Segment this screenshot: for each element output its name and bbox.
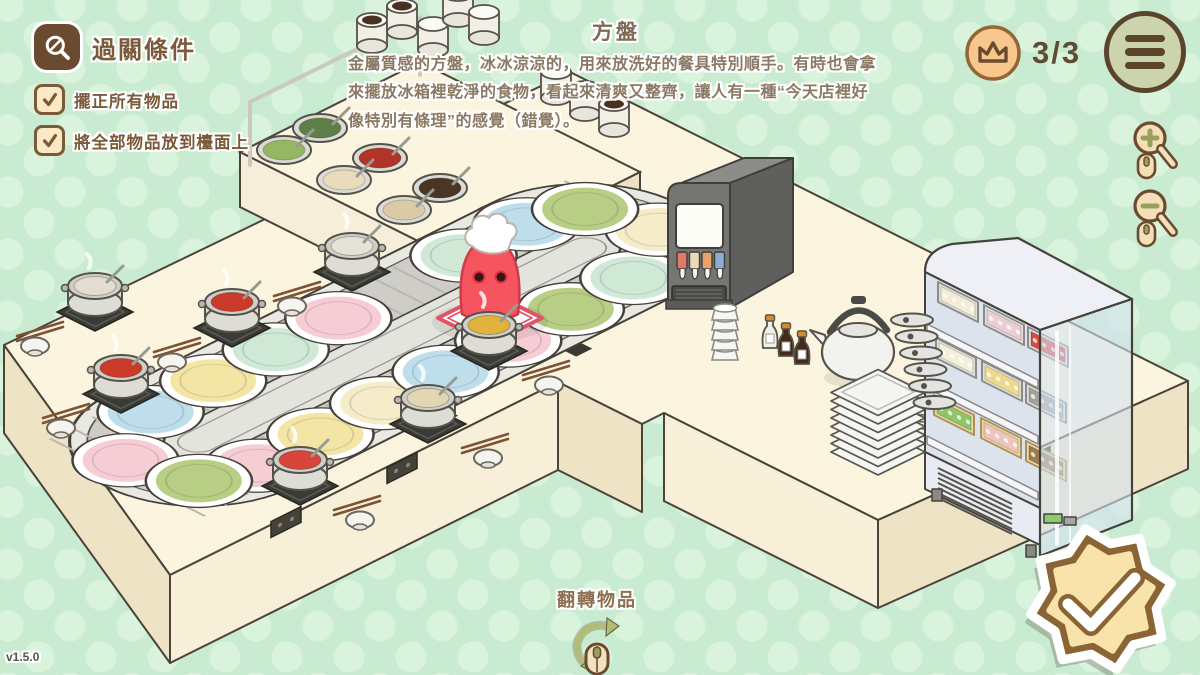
version-label: v1.5.0 <box>6 650 39 664</box>
objective-label: 擺正所有物品 <box>74 88 179 112</box>
hamburger-icon <box>1125 35 1165 43</box>
score-display: 3/3 <box>962 22 1081 84</box>
tooltip-description: 金屬質感的方盤，冰冰涼涼的，用來放洗好的餐具特別順手。有時也會拿來擺放冰箱裡乾淨… <box>348 51 884 136</box>
menu-button[interactable] <box>1104 11 1186 93</box>
checkbox-checked-icon <box>34 84 65 115</box>
pot-lid[interactable] <box>914 396 956 409</box>
objectives-magnifier-icon <box>34 24 80 70</box>
cup-stack[interactable] <box>712 304 738 360</box>
score-value: 3/3 <box>1032 35 1081 71</box>
objective-label: 將全部物品放到檯面上 <box>74 129 249 153</box>
flip-hint: 翻轉物品 <box>497 586 697 675</box>
game-screen: 過關條件 擺正所有物品 將全部物品放到檯面上 方盤 金屬質感的方盤，冰冰涼涼的，… <box>0 0 1200 675</box>
confirm-button[interactable] <box>1016 514 1186 675</box>
tooltip-title: 方盤 <box>348 16 884 46</box>
zoom-in-button[interactable] <box>1126 118 1184 189</box>
checkbox-checked-icon <box>34 125 65 156</box>
mouse-icon <box>1138 154 1155 178</box>
pot-lid[interactable] <box>896 330 938 343</box>
pot-lid[interactable] <box>909 380 951 393</box>
objective-item: 將全部物品放到檯面上 <box>34 125 364 156</box>
item-tooltip: 方盤 金屬質感的方盤，冰冰涼涼的，用來放洗好的餐具特別順手。有時也會拿來擺放冰箱… <box>348 16 884 136</box>
objectives-list: 擺正所有物品 將全部物品放到檯面上 <box>34 84 364 156</box>
mouse-icon <box>586 644 608 674</box>
objectives-panel: 過關條件 擺正所有物品 將全部物品放到檯面上 <box>34 24 364 156</box>
zoom-out-button[interactable] <box>1126 186 1184 257</box>
pot-lid[interactable] <box>891 314 933 327</box>
pot-lid[interactable] <box>905 363 947 376</box>
crown-badge-icon <box>962 22 1024 84</box>
flip-hint-label: 翻轉物品 <box>497 586 697 612</box>
pot-lid[interactable] <box>900 347 942 360</box>
steam <box>87 254 91 268</box>
dispenser-display <box>676 204 723 248</box>
objective-item: 擺正所有物品 <box>34 84 364 115</box>
rotate-mouse-icon <box>559 614 635 675</box>
mouse-icon <box>1138 222 1155 246</box>
objectives-title: 過關條件 <box>92 30 196 65</box>
